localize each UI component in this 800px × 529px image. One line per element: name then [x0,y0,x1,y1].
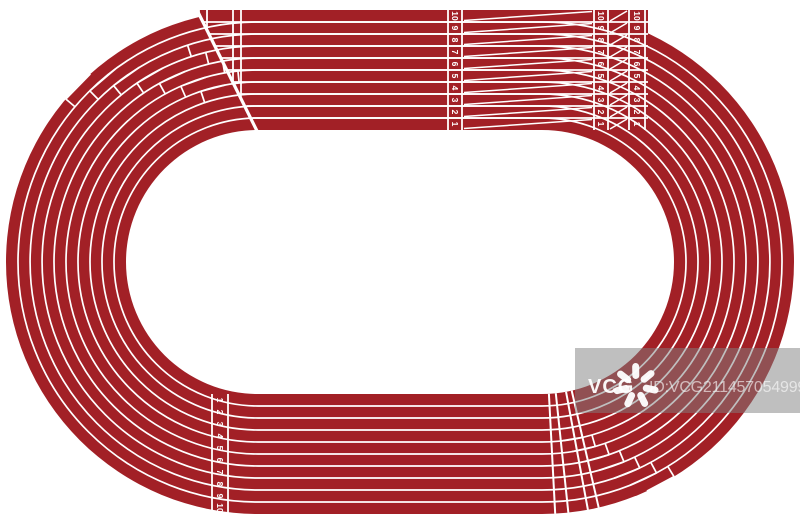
lane-number: 6 [215,458,225,463]
lane-number: 2 [450,110,460,115]
lane-number: 1 [632,122,642,127]
lane-number: 7 [450,50,460,55]
lane-number: 5 [450,74,460,79]
lane-number: 5 [215,446,225,451]
lane-number: 10 [215,503,225,513]
lane-number: 4 [450,86,460,91]
lane-number: 7 [215,470,225,475]
track-illustration: 1234567891012345678910123456789101234567… [0,0,800,524]
lane-number: 3 [450,98,460,103]
lane-number: 7 [596,50,606,55]
lane-number: 9 [632,26,642,31]
lane-number: 2 [215,410,225,415]
lane-number: 5 [632,74,642,79]
lane-number: 8 [596,38,606,43]
watermark-id-text: ID:VCG211457054999 [649,379,800,396]
lane-number: 9 [450,26,460,31]
lane-number: 7 [632,50,642,55]
lane-number: 4 [215,434,225,439]
pinwheel-petal [632,363,639,379]
lane-number: 10 [450,11,460,21]
lane-number: 8 [215,482,225,487]
lane-number: 4 [596,86,606,91]
lane-number: 5 [596,74,606,79]
watermark: VCGID:VCG211457054999 [575,348,800,413]
lane-number: 9 [215,494,225,499]
lane-number: 10 [596,11,606,21]
lane-number: 1 [596,122,606,127]
lane-number: 9 [596,26,606,31]
lane-number: 6 [596,62,606,67]
lane-number: 4 [632,86,642,91]
lane-number: 3 [596,98,606,103]
lane-number: 2 [632,110,642,115]
lane-number: 2 [596,110,606,115]
lane-number: 8 [450,38,460,43]
lane-number: 10 [632,11,642,21]
lane-number: 8 [632,38,642,43]
lane-number: 1 [450,122,460,127]
lane-number: 6 [632,62,642,67]
lane-number: 6 [450,62,460,67]
lane-number: 3 [215,422,225,427]
lane-number: 1 [215,398,225,403]
lane-number: 3 [632,98,642,103]
